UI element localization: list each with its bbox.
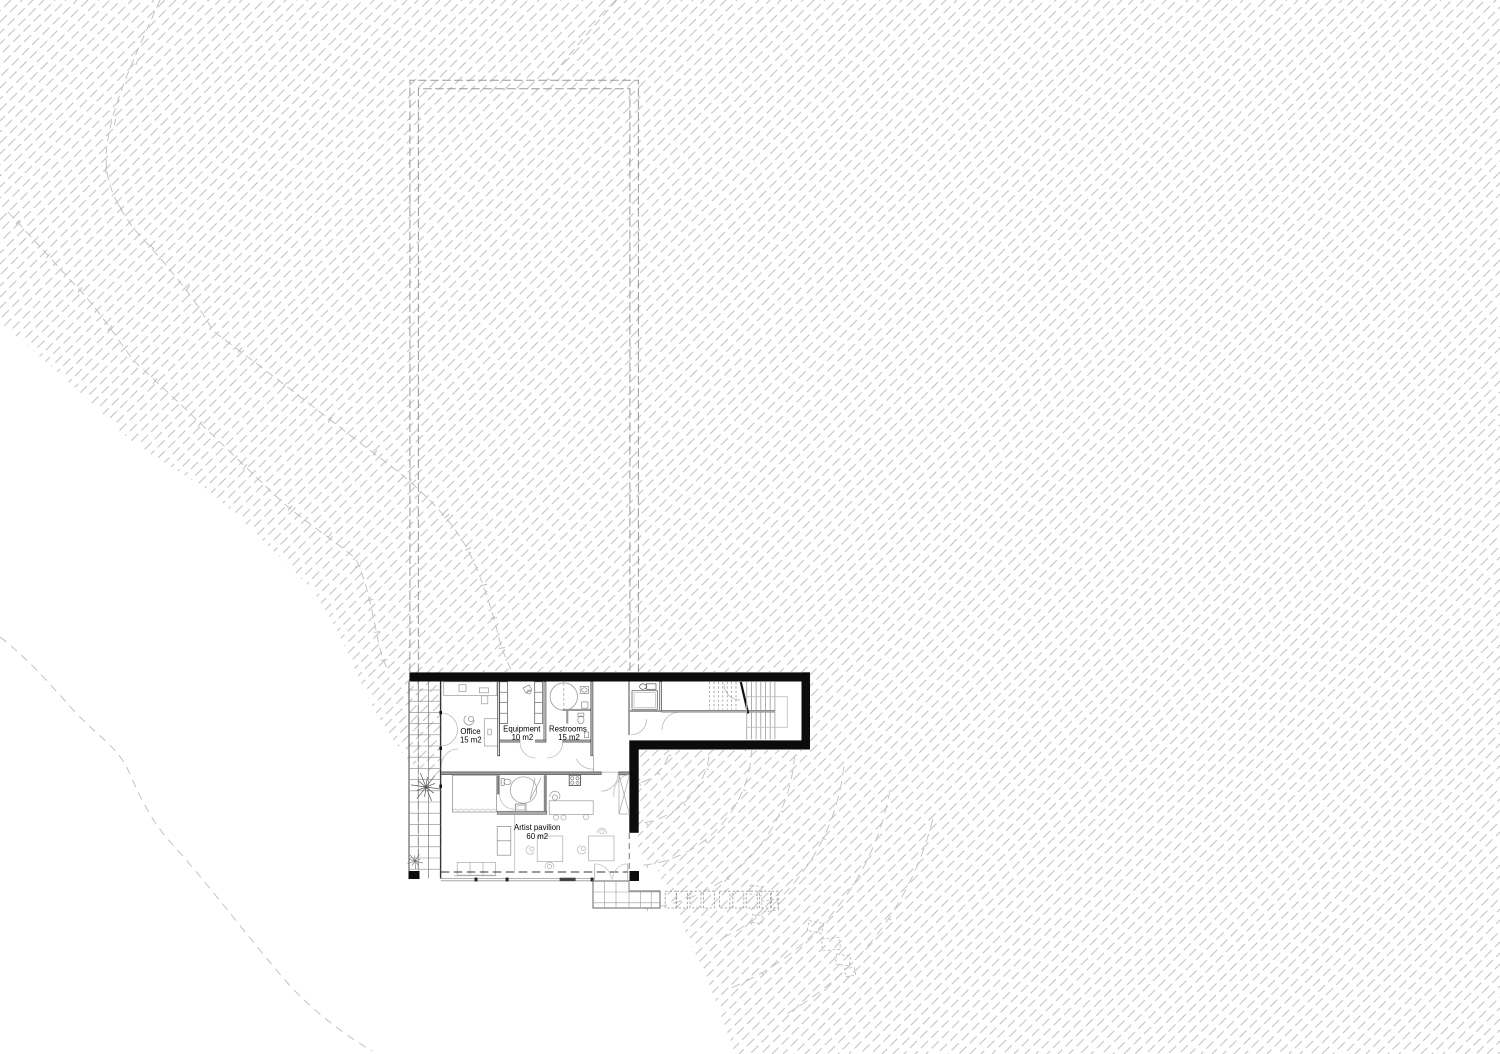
svg-text:15 m2: 15 m2 bbox=[558, 733, 580, 742]
svg-text:10 m2: 10 m2 bbox=[512, 733, 534, 742]
svg-text:Artist pavilion: Artist pavilion bbox=[514, 823, 560, 832]
svg-text:60 m2: 60 m2 bbox=[526, 832, 548, 841]
svg-text:Office: Office bbox=[460, 727, 480, 736]
svg-text:15 m2: 15 m2 bbox=[460, 736, 482, 745]
